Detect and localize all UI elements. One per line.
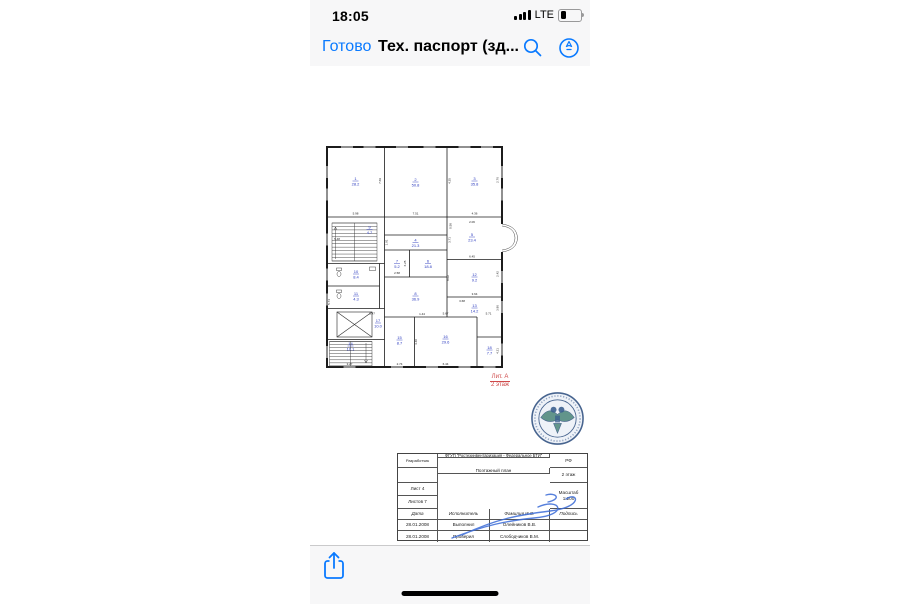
done-button[interactable]: Готово: [322, 38, 371, 56]
window-glyph: [364, 145, 376, 149]
floor-plan-drawing: 128.2250.8335.8421.3523.4618.875.2836.99…: [322, 142, 522, 372]
svg-text:18.8: 18.8: [424, 264, 433, 269]
dimension-label: 5.98: [353, 212, 359, 216]
svg-text:12: 12: [472, 272, 477, 277]
window-glyph: [459, 365, 471, 369]
svg-text:7.7: 7.7: [487, 351, 493, 356]
window-glyph: [325, 189, 329, 201]
window-glyph: [341, 145, 353, 149]
dimension-label: 5.74: [327, 299, 331, 305]
dimension-label: 0.58: [449, 223, 453, 229]
svg-text:8.7: 8.7: [397, 341, 403, 346]
tb-date-1: 28.01.2008: [398, 520, 438, 531]
dimension-label: 5.71: [486, 312, 492, 316]
dimension-label: 1.91: [385, 239, 389, 245]
floor-caption: Лит. А 2 этаж: [470, 374, 530, 389]
dimension-label: 7.69: [378, 178, 382, 184]
status-bar: 18:05 LTE: [310, 0, 590, 30]
dimension-label: 1.44: [419, 312, 425, 316]
svg-text:8.4: 8.4: [353, 275, 359, 280]
tb-empty-cell: [398, 468, 438, 483]
window-glyph: [325, 269, 329, 281]
svg-text:29.6: 29.6: [442, 340, 451, 345]
window-glyph: [424, 145, 436, 149]
dimension-label: 4.36: [472, 212, 478, 216]
svg-text:4.3: 4.3: [353, 297, 359, 302]
bottom-toolbar: [310, 545, 590, 604]
svg-text:14: 14: [348, 341, 353, 346]
battery-cap: [582, 13, 584, 18]
svg-text:18: 18: [487, 345, 492, 350]
battery-fill: [561, 11, 566, 19]
svg-text:16: 16: [443, 334, 448, 339]
dimension-label: 6.45: [469, 255, 475, 259]
svg-text:17: 17: [376, 318, 381, 323]
dimension-label: 5.67: [443, 312, 449, 316]
svg-text:10.0: 10.0: [374, 324, 383, 329]
nav-bar: Готово Тех. паспорт (зд...: [310, 30, 590, 67]
window-glyph: [500, 271, 504, 283]
tb-organization: ФГУП "Ростехинвентаризация - Федеральное…: [438, 454, 550, 458]
window-glyph: [500, 189, 504, 201]
dimension-label: 3.68: [459, 299, 465, 303]
svg-text:15: 15: [397, 335, 402, 340]
battery-icon: [558, 9, 582, 22]
svg-text:4.7: 4.7: [367, 230, 373, 235]
window-glyph: [325, 166, 329, 178]
dimension-label: 1.47: [369, 312, 375, 316]
dimension-label: 3.64: [472, 292, 478, 296]
svg-text:23.4: 23.4: [468, 238, 477, 243]
tb-sheet: Лист 4: [398, 483, 438, 496]
svg-text:21.3: 21.3: [412, 243, 421, 248]
dimension-label: 4.25: [448, 178, 452, 184]
svg-text:28.2: 28.2: [352, 182, 361, 187]
dimension-label: 3.27: [347, 362, 353, 366]
document-page[interactable]: 128.2250.8335.8421.3523.4618.875.2836.99…: [310, 66, 590, 545]
handwritten-signature: [438, 491, 588, 541]
dimension-label: 2.74: [397, 362, 403, 366]
window-glyph: [459, 145, 471, 149]
dimension-label: 2.76: [496, 177, 500, 183]
screenshot-canvas: 18:05 LTE Готово Тех. паспорт (зд...: [0, 0, 900, 604]
tb-plan-type: Поэтажный план: [438, 468, 550, 474]
window-glyph: [500, 301, 504, 313]
dimension-label: 4.21: [496, 348, 500, 354]
dimension-label: 3.71: [448, 237, 452, 243]
clock: 18:05: [332, 8, 369, 24]
svg-text:35.8: 35.8: [471, 182, 480, 187]
svg-text:10: 10: [354, 269, 359, 274]
svg-text:13: 13: [472, 303, 477, 308]
dimension-label: 6.25: [403, 260, 407, 266]
tb-developer-label: Разработчик: [398, 454, 438, 468]
round-seal-eagle-stamp: [530, 391, 585, 446]
dimension-label: 4.40: [414, 339, 418, 345]
svg-text:36.9: 36.9: [412, 297, 421, 302]
document-title: Тех. паспорт (зд...: [378, 38, 519, 56]
dimension-label: 8.02: [446, 275, 450, 281]
tb-date-2: 28.01.2008: [398, 531, 438, 542]
window-glyph: [500, 344, 504, 356]
search-icon[interactable]: [522, 37, 544, 59]
window-glyph: [396, 145, 408, 149]
svg-text:14.2: 14.2: [471, 309, 480, 314]
tb-sheets-total: Листов 7: [398, 496, 438, 509]
status-icons: LTE: [514, 0, 582, 30]
tb-col-date: Дата: [398, 509, 438, 520]
window-glyph: [484, 365, 496, 369]
window-glyph: [426, 365, 438, 369]
window-glyph: [325, 346, 329, 358]
svg-text:50.8: 50.8: [412, 183, 421, 188]
markup-icon[interactable]: [558, 37, 580, 59]
home-indicator[interactable]: [402, 591, 499, 596]
dimension-label: 2.42: [496, 271, 500, 277]
window-glyph: [500, 166, 504, 178]
dimension-label: 7.51: [413, 212, 419, 216]
window-glyph: [325, 234, 329, 246]
svg-text:10.1: 10.1: [347, 347, 356, 352]
bay-window: [500, 224, 518, 252]
share-icon[interactable]: [320, 550, 348, 582]
phone-screen: 18:05 LTE Готово Тех. паспорт (зд...: [310, 0, 590, 604]
tb-floor: 2 этаж: [550, 468, 587, 483]
dimension-label: 5.48: [334, 237, 340, 241]
dimension-label: 2.06: [469, 220, 475, 224]
tb-country: РФ: [550, 454, 587, 468]
dimension-label: 2.58: [394, 271, 400, 275]
dimension-label: 3.86: [496, 305, 500, 311]
cellular-signal-icon: [514, 10, 531, 20]
network-label: LTE: [535, 9, 554, 21]
window-glyph: [481, 145, 493, 149]
svg-text:5.2: 5.2: [394, 264, 400, 269]
floor-caption-line2: 2 этаж: [470, 382, 530, 389]
svg-text:9.2: 9.2: [472, 278, 478, 283]
floor-caption-line1: Лит. А: [490, 374, 511, 382]
dimension-label: 6.44: [443, 362, 449, 366]
